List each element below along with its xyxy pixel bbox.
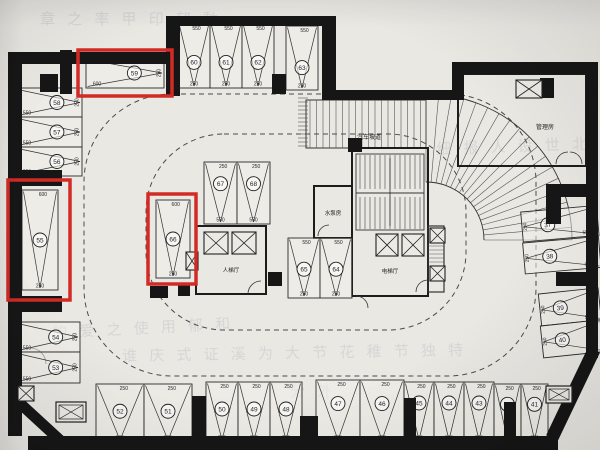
dimension-label: 250 [169, 272, 178, 278]
stall-number: 40 [558, 337, 566, 345]
dimension-label: 250 [477, 384, 486, 390]
parking-stall-43: 25055043 [464, 382, 494, 442]
wall-segment [322, 90, 464, 100]
dimension-label: 550 [23, 141, 32, 147]
parking-stall-65: 55025065 [288, 238, 320, 298]
dimension-label: 250 [75, 157, 81, 166]
parking-stall-55: 60025055 [22, 190, 58, 290]
dimension-label: 550 [249, 218, 258, 224]
dimension-label: 550 [216, 218, 225, 224]
wall-segment [504, 402, 516, 442]
dimension-label: 250 [532, 386, 541, 392]
dimension-label: 250 [284, 384, 293, 390]
parking-stall-52: 25055052 [96, 384, 144, 442]
wall-segment [178, 284, 190, 296]
room-label-pump-room: 水泵房 [325, 209, 342, 217]
parking-stall-61: 55025061 [210, 24, 242, 88]
parking-stall-46: 25055046 [360, 380, 404, 442]
stall-outline [434, 382, 464, 442]
room-label-management-room: 管理房 [536, 123, 554, 131]
dimension-label: 250 [36, 284, 45, 290]
dimension-label: 550 [334, 240, 343, 246]
wall-segment [192, 396, 206, 442]
stall-number: 47 [334, 401, 342, 408]
dimension-label: 250 [190, 82, 199, 88]
dimension-label: 250 [542, 337, 549, 346]
stall-number: 45 [415, 400, 423, 407]
wall-segment [28, 436, 558, 450]
stall-number: 61 [222, 60, 230, 67]
wall-segment [586, 62, 598, 358]
dimension-label: 600 [39, 192, 48, 198]
dimension-label: 250 [447, 384, 456, 390]
dimension-label: 250 [75, 128, 81, 137]
stall-number: 53 [52, 365, 60, 372]
dimension-label: 250 [254, 82, 263, 88]
stall-number: 62 [254, 60, 262, 67]
dimension-label: 550 [23, 346, 32, 352]
dimension-label: 250 [73, 333, 79, 342]
dimension-label: 550 [192, 26, 201, 32]
parking-stall-54: 55025054 [16, 322, 80, 352]
stall-number: 63 [298, 65, 306, 72]
stall-number: 56 [53, 159, 61, 166]
stall-outline [204, 162, 237, 224]
wall-segment [150, 286, 168, 298]
stall-number: 57 [53, 129, 61, 136]
stall-number: 44 [445, 400, 453, 407]
dimension-label: 250 [75, 98, 81, 107]
room-label-car-ramp: 汽车坡道 [357, 133, 381, 141]
stall-number: 46 [378, 401, 386, 408]
parking-stall-41: 25055041 [521, 384, 548, 442]
stall-number: 55 [36, 237, 44, 244]
wall-segment [166, 16, 334, 26]
wall-segment [322, 16, 336, 98]
stall-number: 52 [116, 409, 124, 416]
dimension-label: 250 [417, 384, 426, 390]
parking-stall-51: 25055051 [144, 384, 192, 442]
stall-number: 65 [300, 267, 308, 274]
floor-plan-drawing: 章 之 率 甲 印 郁 動细 报 人 设 世 北的 爱 之 使 用 郁 和谁 庆… [0, 0, 600, 450]
stall-number: 68 [250, 181, 258, 188]
wall-segment [18, 170, 62, 186]
parking-stall-57: 55025057 [16, 117, 82, 147]
stall-number: 39 [556, 305, 564, 313]
parking-stall-49: 25055049 [238, 382, 270, 442]
dimension-label: 250 [381, 382, 390, 388]
wall-segment [556, 272, 598, 286]
dimension-label: 550 [300, 28, 309, 34]
stall-number: 38 [546, 253, 554, 261]
stall-number: 60 [190, 60, 198, 67]
parking-stall-67: 25055067 [204, 162, 237, 224]
dimension-label: 250 [219, 164, 228, 170]
dimension-label: 250 [337, 382, 346, 388]
dimension-label: 250 [222, 82, 231, 88]
dimension-label: 250 [332, 292, 341, 298]
dimension-label: 250 [540, 305, 547, 314]
stall-number: 41 [531, 402, 539, 409]
parking-stall-53: 55025053 [16, 352, 80, 383]
stall-number: 48 [282, 406, 290, 413]
parking-stall-47: 25055047 [316, 380, 360, 442]
stall-number: 59 [131, 70, 139, 77]
wall-segment [452, 62, 598, 74]
floor-plan-photo: 章 之 率 甲 印 郁 動细 报 人 设 世 北的 爱 之 使 用 郁 和谁 庆… [0, 0, 600, 450]
wall-segment [14, 52, 174, 64]
dimension-label: 600 [172, 202, 181, 208]
parking-stall-48: 25055048 [270, 382, 302, 442]
wall-segment [404, 398, 416, 442]
stall-number: 67 [217, 181, 225, 188]
dimension-label: 600 [93, 82, 102, 88]
stall-outline [237, 162, 270, 224]
parking-stall-44: 25055044 [434, 382, 464, 442]
stall-number: 43 [475, 400, 483, 407]
wall-segment [268, 272, 282, 286]
stall-number: 66 [169, 236, 177, 243]
dimension-label: 550 [23, 377, 32, 383]
dimension-label: 250 [252, 164, 261, 170]
stall-number: 51 [164, 409, 172, 416]
parking-stall-68: 25055068 [237, 162, 270, 224]
dimension-label: 250 [298, 84, 307, 90]
stall-number: 64 [332, 267, 340, 274]
dimension-label: 550 [23, 111, 32, 117]
stall-number: 49 [250, 406, 258, 413]
stall-number: 54 [52, 334, 60, 341]
parking-stall-64: 55025064 [320, 238, 352, 298]
dimension-label: 250 [73, 363, 79, 372]
stall-number: 58 [53, 100, 61, 107]
dimension-label: 250 [120, 386, 129, 392]
wall-segment [8, 52, 22, 436]
parking-stall-60: 55025060 [178, 24, 210, 88]
dimension-label: 250 [220, 384, 229, 390]
parking-stall-50: 25055050 [206, 382, 238, 442]
room-label-lift-lobby: 电梯厅 [382, 267, 399, 275]
parking-stall-62: 55025062 [242, 24, 274, 88]
dimension-label: 250 [252, 384, 261, 390]
wall-segment [60, 50, 72, 94]
stall-number: 50 [218, 406, 226, 413]
dimension-label: 550 [256, 26, 265, 32]
dimension-label: 250 [157, 69, 163, 78]
parking-stall-63: 55025063 [286, 26, 318, 90]
stall-outline [464, 382, 494, 442]
wall-segment [300, 416, 318, 442]
dimension-label: 250 [168, 386, 177, 392]
wall-segment [272, 74, 286, 94]
stall-outline [286, 26, 318, 90]
parking-stall-58: 55025058 [16, 88, 82, 117]
dimension-label: 550 [302, 240, 311, 246]
dimension-label: 250 [524, 254, 531, 263]
stall-outline [521, 384, 548, 442]
dimension-label: 250 [522, 222, 529, 231]
wall-segment [546, 184, 561, 224]
room-label-passenger-lift-lobby: 人梯厅 [223, 266, 240, 274]
dimension-label: 250 [300, 292, 309, 298]
dimension-label: 250 [505, 386, 514, 392]
dimension-label: 550 [224, 26, 233, 32]
parking-stall-66: 60025066 [156, 200, 190, 278]
wall-segment [40, 74, 58, 92]
